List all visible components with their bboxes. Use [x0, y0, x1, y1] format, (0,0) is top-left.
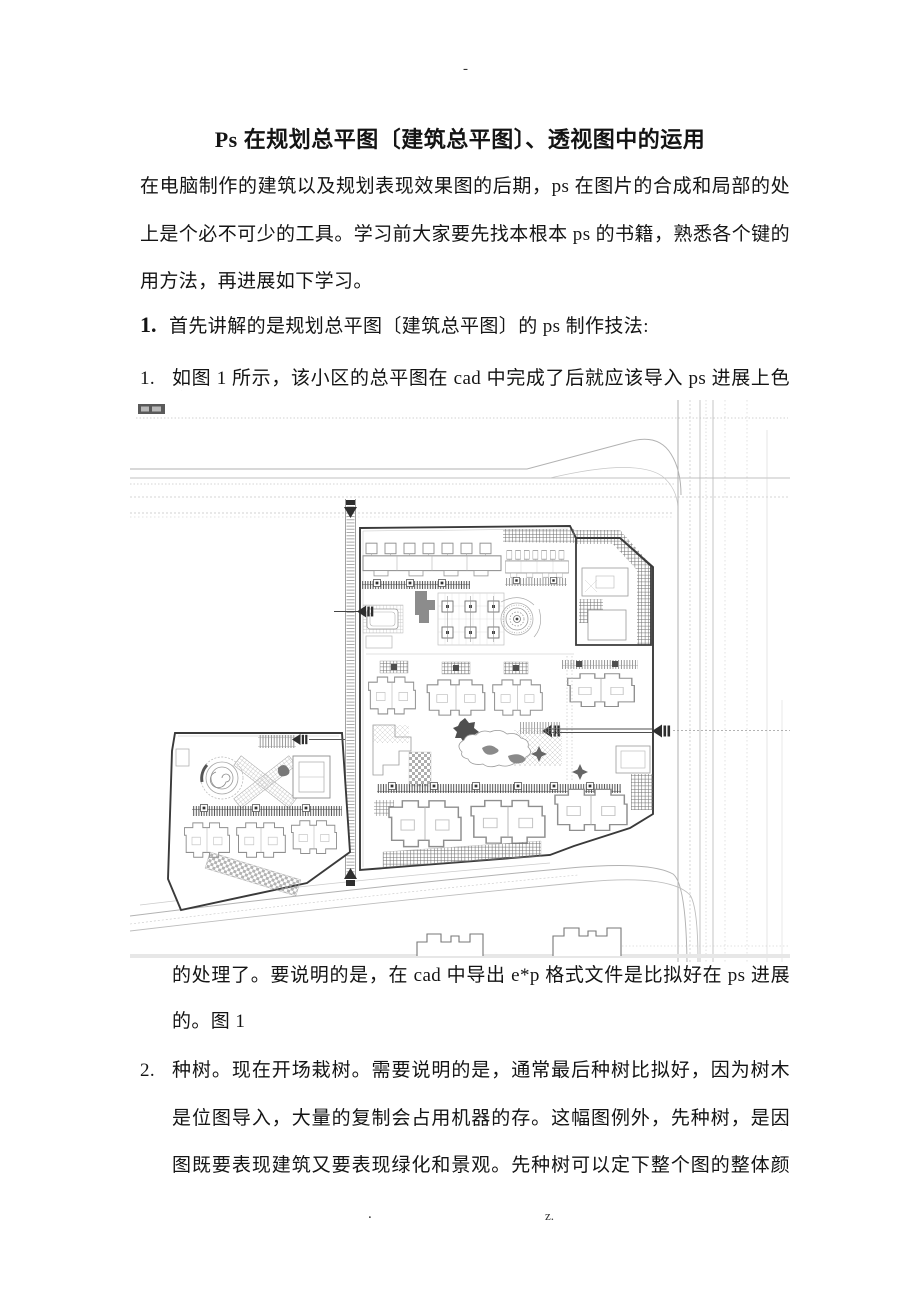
figure-1-site-plan — [130, 400, 790, 962]
central-courtyard — [438, 593, 504, 645]
step2-number: 2. — [140, 1059, 155, 1082]
footer-right-mark: z. — [545, 1208, 554, 1224]
section1-number: 1. — [140, 312, 157, 338]
intro-line-1: 在电脑制作的建筑以及规划表现效果图的后期，ps 在图片的合成和局部的处理 — [140, 175, 790, 199]
title-block — [138, 404, 165, 414]
walkway-sw — [192, 806, 342, 816]
step1-cont-line-1: 的处理了。要说明的是，在 cad 中导出 e*p 格式文件是比拟好在 ps 进展… — [172, 964, 790, 988]
offsite-buildings — [417, 928, 621, 956]
footer-left-mark: . — [368, 1206, 372, 1223]
page-title: Ps 在规划总平图〔建筑总平图〕、透视图中的运用 — [0, 122, 920, 154]
step2-line-2: 是位图导入，大量的复制会占用机器的存。这幅图例外，先种树，是因为这 — [172, 1107, 790, 1131]
secondary-site — [168, 733, 350, 910]
step1-cont-line-2: 的。图 1 — [172, 1010, 245, 1033]
north-gate-marker — [344, 500, 357, 518]
east-entrance-arrow-icon — [652, 725, 670, 738]
header-mark: - — [463, 61, 468, 78]
south-gate-marker — [344, 868, 357, 886]
intro-line-3: 用方法，再进展如下学习。 — [140, 270, 373, 293]
main-site — [334, 526, 790, 870]
step2-line-1: 种树。现在开场栽树。需要说明的是，通常最后种树比拟好，因为树木通常 — [172, 1059, 790, 1083]
step1-line-1: 如图 1 所示，该小区的总平图在 cad 中完成了后就应该导入 ps 进展上色方… — [172, 367, 790, 391]
intro-line-2: 上是个必不可少的工具。学习前大家要先找本根本 ps 的书籍，熟悉各个键的使 — [140, 223, 790, 247]
step2-line-3: 图既要表现建筑又要表现绿化和景观。先种树可以定下整个图的整体颜色倾 — [172, 1154, 790, 1178]
section1-heading: 首先讲解的是规划总平图〔建筑总平图〕的 ps 制作技法: — [169, 315, 649, 338]
step1-number: 1. — [140, 367, 155, 390]
document-page: - Ps 在规划总平图〔建筑总平图〕、透视图中的运用 在电脑制作的建筑以及规划表… — [0, 0, 920, 1302]
